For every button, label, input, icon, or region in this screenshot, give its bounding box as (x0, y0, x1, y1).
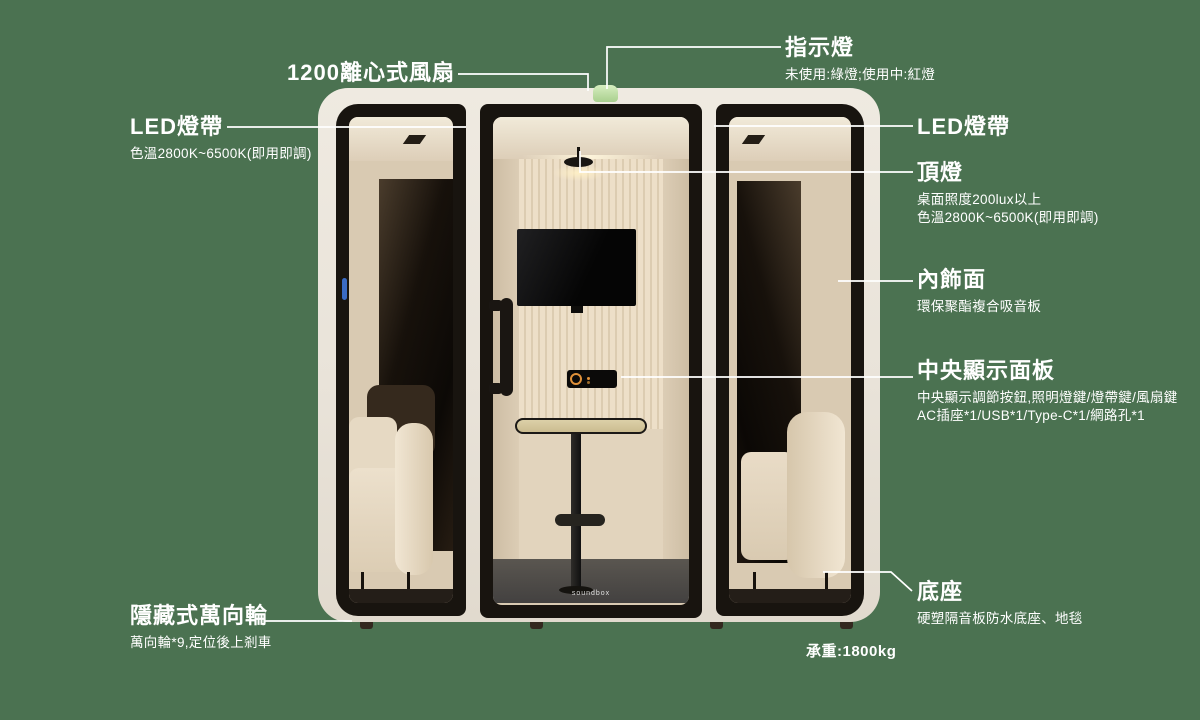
load-capacity-label: 承重:1800kg (806, 640, 896, 661)
led-left-subtext: 色溫2800K~6500K(即用即調) (130, 145, 312, 162)
top-light-subtext-2: 色溫2800K~6500K(即用即調) (917, 209, 1099, 226)
led-right-title: LED燈帶 (917, 115, 1010, 140)
interior-subtext: 環保聚酯複合吸音板 (917, 298, 1041, 315)
base-subtext: 硬塑隔音板防水底座、地毯 (917, 610, 1083, 627)
door-lock-badge (342, 278, 347, 300)
window-left-glass (349, 117, 453, 603)
sofa-leg (825, 572, 828, 589)
floor (349, 589, 453, 603)
sofa-armrest (395, 423, 433, 575)
panel-leds (587, 377, 590, 380)
interior-title: 內飾面 (917, 268, 1041, 293)
floor (729, 589, 851, 603)
panel-subtext-2: AC插座*1/USB*1/Type-C*1/網路孔*1 (917, 407, 1178, 424)
door-handle-mount (489, 300, 502, 311)
sofa-leg (361, 572, 364, 589)
annotation-led-strip-right: LED燈帶 (917, 115, 1010, 140)
ceiling-lamp (564, 157, 593, 167)
indicator-title: 指示燈 (785, 36, 935, 61)
window-right-glass (729, 117, 851, 603)
annotation-indicator: 指示燈 未使用:綠燈;使用中:紅燈 (785, 36, 935, 83)
back-wall (519, 429, 663, 561)
door-handle (500, 298, 513, 396)
central-control-panel (567, 370, 617, 388)
tv-mount (571, 306, 583, 313)
window-right-frame (716, 104, 864, 616)
table-column (571, 433, 581, 590)
annotation-central-panel: 中央顯示面板 中央顯示調節按鈕,照明燈鍵/燈帶鍵/風扇鍵 AC插座*1/USB*… (917, 359, 1178, 424)
product-annotation-diagram: soundbox (0, 0, 1200, 720)
door-glass: soundbox (493, 117, 689, 605)
ceiling (493, 117, 689, 159)
indicator-subtext: 未使用:綠燈;使用中:紅燈 (785, 66, 935, 83)
table-footrest (555, 514, 605, 526)
side-wall (663, 159, 689, 561)
window-left-frame (336, 104, 466, 616)
wheels-title: 隱藏式萬向輪 (130, 604, 272, 629)
soundbox-logo: soundbox (493, 590, 689, 597)
ceiling (349, 117, 453, 161)
wheels-subtext: 萬向輪*9,定位後上剎車 (130, 634, 272, 651)
table-top (515, 418, 647, 434)
panel-title: 中央顯示面板 (917, 359, 1178, 384)
fan-title: 1200離心式風扇 (175, 61, 455, 86)
door-handle-mount (489, 383, 502, 394)
sofa-armrest (787, 412, 845, 578)
top-light-title: 頂燈 (917, 161, 1099, 186)
annotation-base: 底座 硬塑隔音板防水底座、地毯 (917, 580, 1083, 627)
annotation-casters: 隱藏式萬向輪 萬向輪*9,定位後上剎車 (130, 604, 272, 651)
annotation-top-light: 頂燈 桌面照度200lux以上 色溫2800K~6500K(即用即調) (917, 161, 1099, 226)
annotation-fan: 1200離心式風扇 (175, 61, 455, 86)
door-frame: soundbox (480, 104, 702, 618)
sofa-leg (407, 572, 410, 589)
panel-subtext-1: 中央顯示調節按鈕,照明燈鍵/燈帶鍵/風扇鍵 (917, 389, 1178, 406)
indicator-light (593, 85, 618, 102)
dial-knob (570, 373, 582, 385)
leader-indicator (607, 47, 781, 89)
led-left-title: LED燈帶 (130, 115, 312, 140)
pendant-glow (553, 165, 605, 181)
annotation-led-strip-left: LED燈帶 色溫2800K~6500K(即用即調) (130, 115, 312, 162)
top-light-subtext-1: 桌面照度200lux以上 (917, 191, 1099, 208)
tv-screen (517, 229, 636, 306)
annotation-interior-panel: 內飾面 環保聚酯複合吸音板 (917, 268, 1041, 315)
base-title: 底座 (917, 580, 1083, 605)
sofa-leg (753, 572, 756, 589)
